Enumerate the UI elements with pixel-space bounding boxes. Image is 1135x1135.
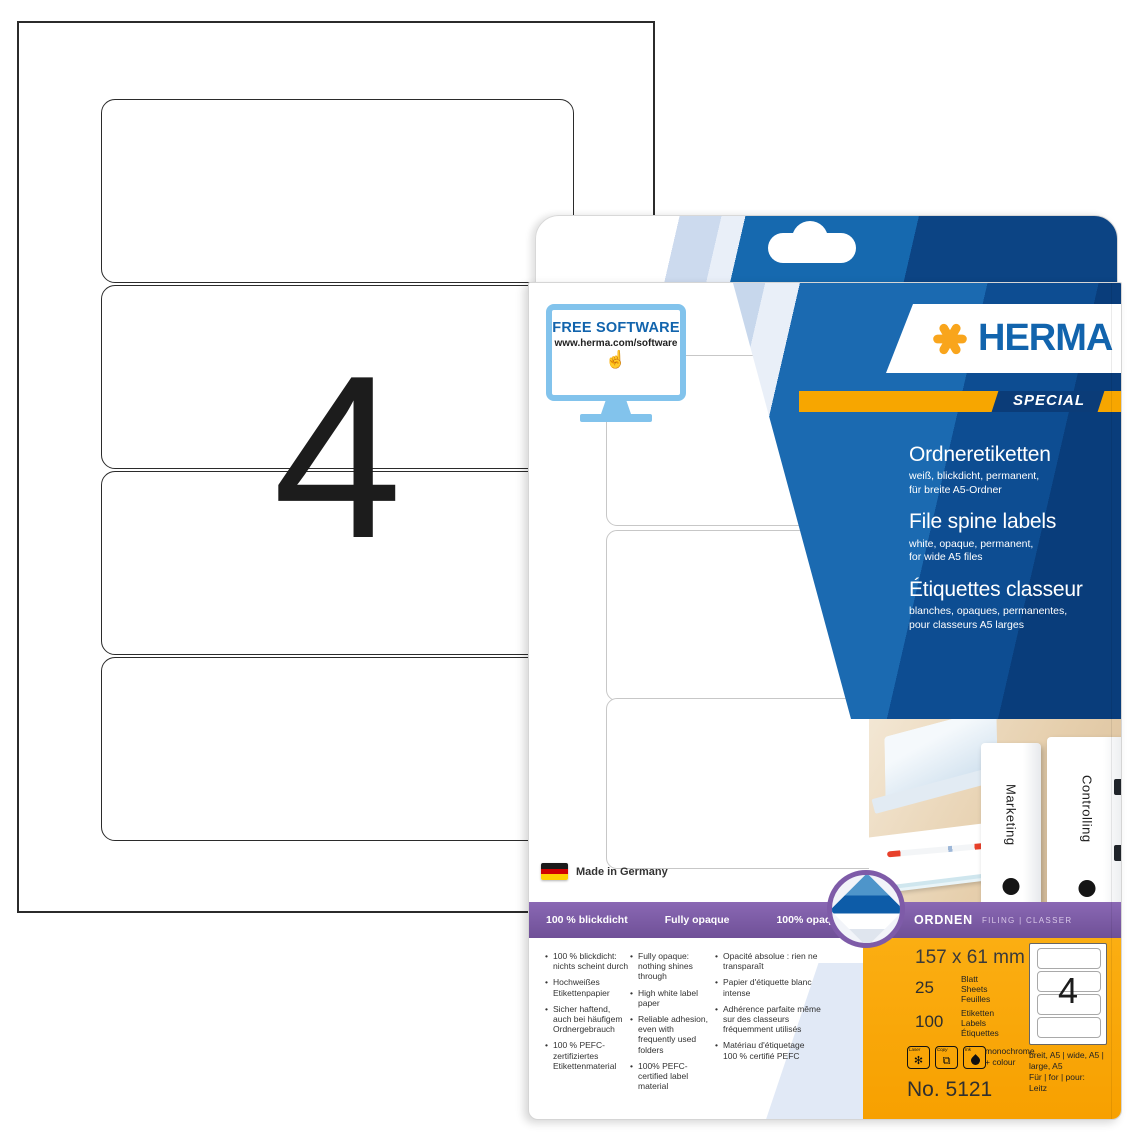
peel-label-badge-icon — [827, 870, 905, 948]
mini-sheet-count: 4 — [1030, 970, 1106, 1012]
features-french: Opacité absolue : rien ne transparaît Pa… — [715, 951, 821, 1067]
title-german: Ordneretiketten weiß, blickdicht, perman… — [909, 443, 1115, 497]
sheet-count: 25 — [915, 978, 934, 998]
compatible-brand: Für | for | pour: Leitz — [1029, 1072, 1085, 1093]
title-french: Étiquettes classeur blanches, opaques, p… — [909, 578, 1115, 632]
folder-label: Marketing — [1004, 784, 1019, 846]
package-fold-line — [1111, 283, 1112, 1119]
article-number: No. 5121 — [907, 1078, 992, 1102]
print-mode: monochrome + colour — [985, 1046, 1035, 1067]
sheet-count-units: Blatt Sheets Feuilles — [961, 974, 990, 1005]
folder-mechanism-slot — [1114, 779, 1122, 795]
special-label: SPECIAL — [999, 392, 1099, 409]
herma-asterisk-icon — [930, 319, 970, 359]
folder-marketing: Marketing — [981, 743, 1041, 903]
monitor-icon: FREE SOFTWARE www.herma.com/software ☝ — [546, 304, 686, 401]
lifestyle-photo: Marketing Controlling — [869, 719, 1122, 903]
features-german: 100 % blickdicht: nichts scheint durch H… — [545, 951, 629, 1077]
product-titles: Ordneretiketten weiß, blickdicht, perman… — [909, 443, 1115, 645]
inkjet-icon: Ink — [963, 1046, 986, 1069]
package-hang-tab — [535, 215, 1118, 292]
free-software-title: FREE SOFTWARE — [552, 320, 680, 336]
laser-printer-icon: Laser ✻ — [907, 1046, 930, 1069]
label-outline — [101, 99, 574, 283]
features-english: Fully opaque: nothing shines through Hig… — [630, 951, 712, 1097]
monitor-base — [580, 414, 652, 422]
folder-format: breit, A5 | wide, A5 | large, A5 — [1029, 1050, 1104, 1071]
brand-name: HERMA — [978, 317, 1112, 360]
hand-cursor-icon: ☝ — [552, 350, 680, 370]
euro-slot-hole — [768, 233, 856, 263]
package-front: FREE SOFTWARE www.herma.com/software ☝ H… — [528, 282, 1122, 1120]
folder-finger-hole — [1079, 880, 1096, 897]
folder-mechanism-slot — [1114, 845, 1122, 861]
label-outline — [101, 657, 574, 841]
mini-sheet-diagram: 4 — [1029, 943, 1107, 1045]
special-band: SPECIAL — [799, 391, 1122, 412]
free-software-promo: FREE SOFTWARE www.herma.com/software ☝ — [546, 304, 686, 422]
opacity-category-bar: 100 % blickdicht Fully opaque 100% opaqu… — [529, 902, 1122, 938]
folder-finger-hole — [1003, 878, 1020, 895]
software-url: www.herma.com/software — [552, 338, 680, 349]
monitor-stand — [601, 401, 631, 414]
opacity-en: Fully opaque — [665, 914, 730, 926]
herma-logo: HERMA — [886, 304, 1122, 373]
label-count-units: Etiketten Labels Étiquettes — [961, 1008, 999, 1039]
title-english: File spine labels white, opaque, permane… — [909, 510, 1115, 564]
spec-panel: 157 x 61 mm 25 Blatt Sheets Feuilles 100… — [863, 938, 1122, 1120]
printer-compatibility-icons: Laser ✻ Copy ⧉ Ink — [907, 1046, 986, 1069]
copier-icon: Copy ⧉ — [935, 1046, 958, 1069]
label-size: 157 x 61 mm — [915, 947, 1025, 969]
category-label: ORDNEN FILING | CLASSER — [914, 902, 1072, 938]
product-label-outline — [606, 698, 898, 869]
product-packshot: 4 FREE SOFTWARE www.herma.com/software ☝ — [0, 0, 1135, 1135]
folder-label: Controlling — [1080, 775, 1095, 843]
made-in-germany: Made in Germany — [541, 863, 668, 880]
opacity-de: 100 % blickdicht — [546, 914, 628, 926]
label-count: 100 — [915, 1012, 943, 1032]
german-flag-icon — [541, 863, 568, 880]
labels-per-sheet-number: 4 — [101, 353, 574, 563]
